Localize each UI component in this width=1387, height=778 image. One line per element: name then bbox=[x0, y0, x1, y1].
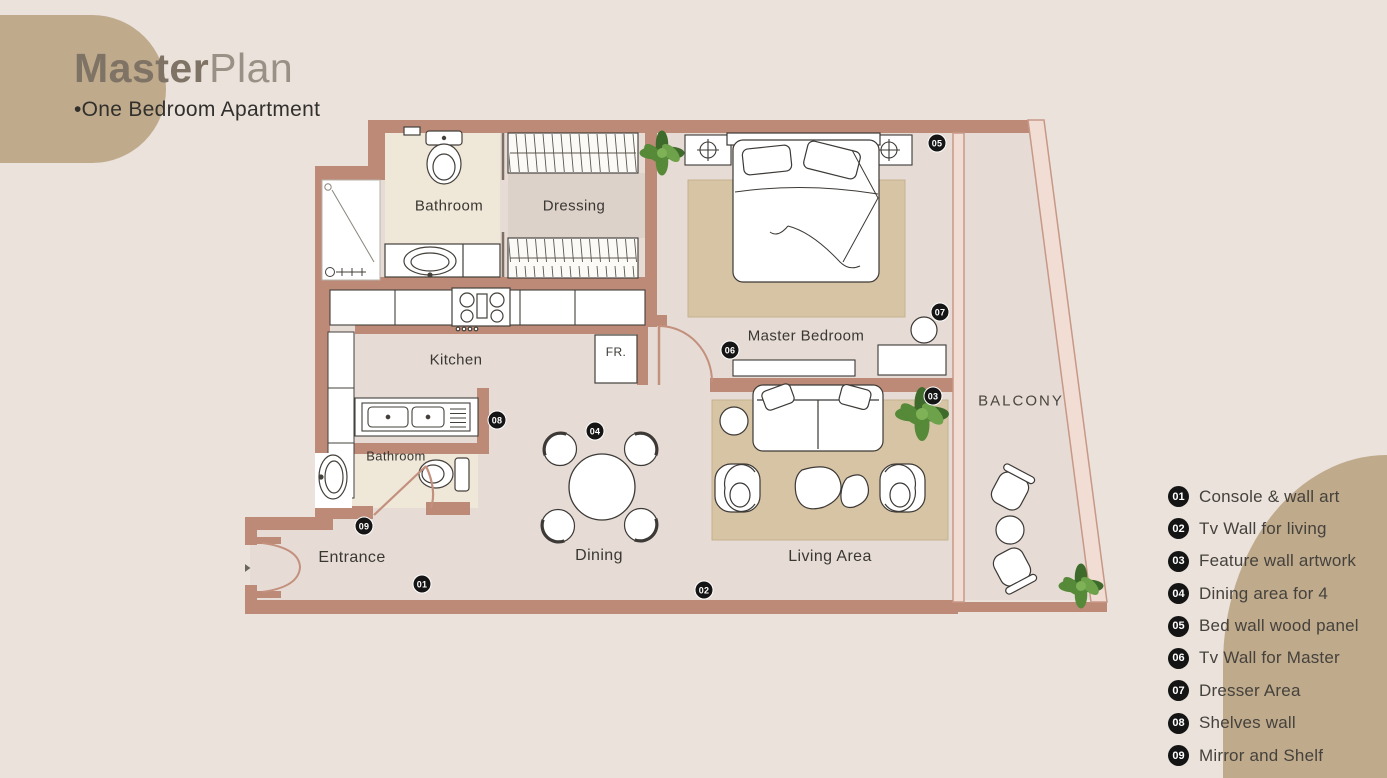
armchair-left bbox=[715, 464, 760, 512]
legend-label: Console & wall art bbox=[1199, 487, 1340, 507]
legend-badge: 05 bbox=[1168, 616, 1189, 637]
plan-badge-tv-master: 06 bbox=[721, 341, 740, 360]
shower bbox=[322, 180, 380, 280]
bed bbox=[727, 133, 880, 282]
plan-badge-console: 01 bbox=[413, 575, 432, 594]
plan-badge-shelves: 08 bbox=[488, 411, 507, 430]
legend-item: 08Shelves wall bbox=[1168, 713, 1359, 734]
legend-item: 04Dining area for 4 bbox=[1168, 583, 1359, 604]
room-label-kitchen: Kitchen bbox=[430, 352, 483, 369]
legend-item: 02Tv Wall for living bbox=[1168, 518, 1359, 539]
plan-badge-dresser: 07 bbox=[931, 303, 950, 322]
legend-item: 01Console & wall art bbox=[1168, 486, 1359, 507]
kitchen-sink bbox=[355, 398, 478, 436]
plan-badge-mirror: 09 bbox=[355, 517, 374, 536]
tv-console-master bbox=[733, 360, 855, 376]
nightstand-left bbox=[685, 135, 731, 165]
legend-label: Bed wall wood panel bbox=[1199, 616, 1359, 636]
legend-label: Tv Wall for Master bbox=[1199, 648, 1340, 668]
legend-label: Tv Wall for living bbox=[1199, 519, 1327, 539]
legend-label: Shelves wall bbox=[1199, 713, 1296, 733]
vanity-main-bathroom bbox=[385, 244, 500, 277]
plan-badge-feature-wall: 03 bbox=[924, 387, 943, 406]
plan-badge-tv-living: 02 bbox=[695, 581, 714, 600]
plan-badge-dining: 04 bbox=[586, 422, 605, 441]
legend-badge: 04 bbox=[1168, 583, 1189, 604]
room-label-entrance: Entrance bbox=[318, 549, 385, 567]
legend-badge: 06 bbox=[1168, 648, 1189, 669]
legend-item: 03Feature wall artwork bbox=[1168, 551, 1359, 572]
slide: MasterPlan •One Bedroom Apartment bbox=[0, 0, 1387, 778]
floor-plan-drawing bbox=[245, 113, 1117, 621]
legend-label: Feature wall artwork bbox=[1199, 551, 1356, 571]
armchair-right bbox=[880, 464, 925, 512]
room-label-fridge: FR. bbox=[606, 345, 627, 359]
legend-label: Dresser Area bbox=[1199, 681, 1301, 701]
window-wall bbox=[953, 133, 964, 602]
room-label-dressing: Dressing bbox=[543, 198, 605, 215]
room-label-living-area: Living Area bbox=[788, 548, 872, 566]
legend-badge: 03 bbox=[1168, 551, 1189, 572]
room-label-dining: Dining bbox=[575, 547, 623, 565]
legend-badge: 07 bbox=[1168, 680, 1189, 701]
legend-badge: 09 bbox=[1168, 745, 1189, 766]
sofa bbox=[753, 382, 883, 451]
stove bbox=[452, 288, 510, 331]
legend-item: 09Mirror and Shelf bbox=[1168, 745, 1359, 766]
sink-lower-bathroom bbox=[315, 453, 352, 508]
toilet-lower-bathroom bbox=[419, 458, 469, 491]
wardrobe-bottom bbox=[508, 238, 638, 278]
legend: 01Console & wall art 02Tv Wall for livin… bbox=[1168, 486, 1359, 778]
legend-badge: 02 bbox=[1168, 518, 1189, 539]
legend-item: 05Bed wall wood panel bbox=[1168, 616, 1359, 637]
legend-item: 06Tv Wall for Master bbox=[1168, 648, 1359, 669]
room-label-master-bedroom: Master Bedroom bbox=[748, 328, 864, 345]
wardrobe-top bbox=[508, 133, 638, 173]
fridge bbox=[595, 335, 637, 383]
side-table bbox=[720, 407, 748, 435]
legend-badge: 08 bbox=[1168, 713, 1189, 734]
legend-label: Dining area for 4 bbox=[1199, 584, 1328, 604]
room-label-bathroom-lower: Bathroom bbox=[366, 449, 426, 464]
plan-badge-bed-wall: 05 bbox=[928, 134, 947, 153]
balcony-table bbox=[996, 516, 1024, 544]
legend-label: Mirror and Shelf bbox=[1199, 746, 1323, 766]
legend-badge: 01 bbox=[1168, 486, 1189, 507]
room-label-bathroom-top: Bathroom bbox=[415, 198, 483, 215]
legend-item: 07Dresser Area bbox=[1168, 680, 1359, 701]
room-label-balcony: BALCONY bbox=[978, 393, 1064, 410]
